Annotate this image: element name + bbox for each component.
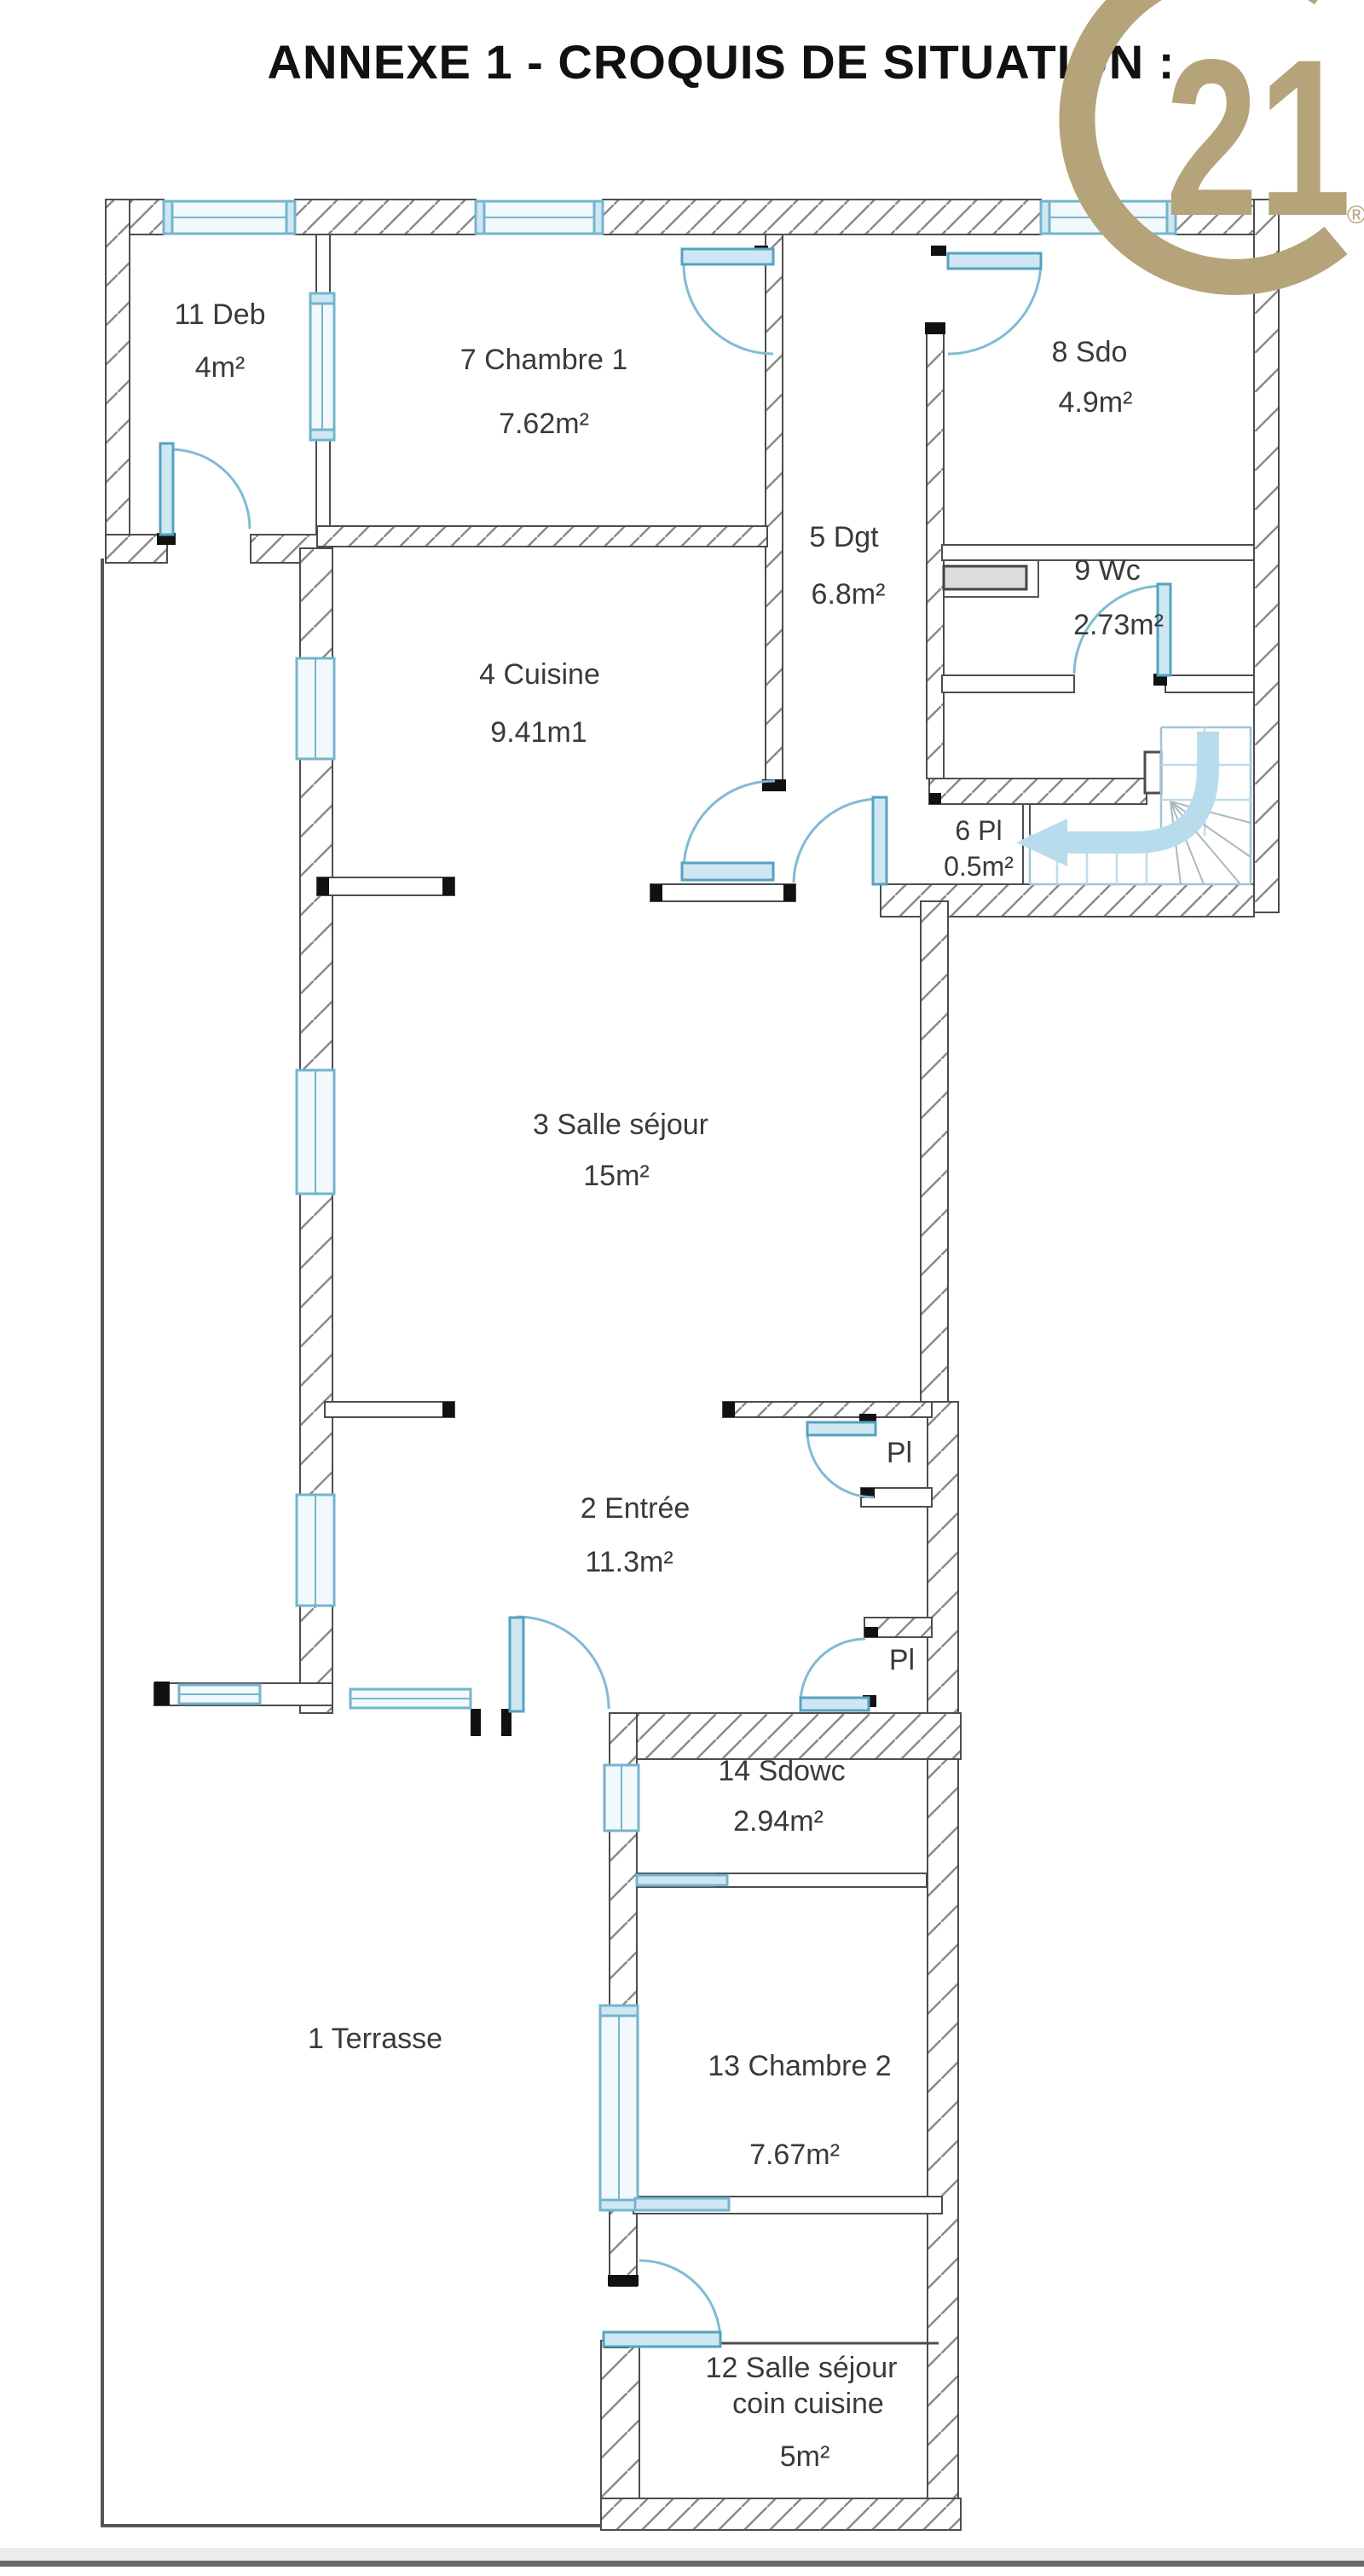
door-top-a-leaf	[682, 249, 773, 264]
door-room12-sill	[604, 2332, 720, 2347]
logo-number: 21	[1165, 13, 1351, 263]
label-chambre2-area: 7.67m²	[749, 2139, 840, 2171]
window-sejour	[297, 1070, 334, 1194]
label-pl-lower: Pl	[889, 1644, 915, 1676]
label-sdo-area: 4.9m²	[1059, 386, 1133, 419]
walls-interior	[316, 234, 1254, 2343]
label-deb-area: 4m²	[195, 351, 246, 384]
door-terrasse-leaf	[510, 1618, 523, 1711]
label-pl6-area: 0.5m²	[944, 851, 1014, 882]
label-deb-name: 11 Deb	[174, 298, 265, 331]
door-pl2-leaf	[800, 1698, 869, 1711]
label-entree-name: 2 Entrée	[581, 1492, 691, 1525]
window-top-1	[164, 201, 295, 234]
label-salle12-name: 12 Salle séjour	[706, 2352, 898, 2384]
window-deb-panel	[310, 293, 334, 440]
door-top-b-leaf	[948, 253, 1041, 269]
stairs	[1016, 727, 1251, 884]
logo-registered-mark: ®	[1347, 201, 1364, 229]
label-cuisine-name: 4 Cuisine	[479, 658, 600, 691]
label-entree-area: 11.3m²	[585, 1546, 673, 1578]
door-deb-arc	[170, 449, 250, 529]
door-top-b-arc	[948, 261, 1041, 354]
door-deb-leaf	[160, 443, 173, 535]
window-divider-chambre2	[635, 2198, 729, 2210]
stair-fan-treads	[1170, 802, 1251, 884]
label-chambre2-name: 13 Chambre 2	[708, 2050, 891, 2082]
label-dgt-area: 6.8m²	[812, 578, 886, 611]
door-top-a-arc	[684, 264, 773, 354]
door-dgt-arc	[794, 799, 879, 883]
label-sdowc-name: 14 Sdowc	[718, 1755, 845, 1787]
label-wc-area: 2.73m²	[1073, 609, 1164, 641]
door-cuisine-arc	[684, 781, 775, 867]
window-chambre2	[600, 2006, 638, 2210]
page-title: ANNEXE 1 - CROQUIS DE SITUATION :	[268, 35, 1176, 89]
door-room12-arc	[639, 2261, 720, 2342]
window-wing	[179, 1685, 260, 1704]
label-cuisine-area: 9.41m1	[490, 716, 587, 749]
door-pl2-arc	[800, 1639, 865, 1702]
label-pl6-name: 6 Pl	[955, 815, 1002, 846]
terrace-outline	[102, 559, 605, 2526]
sink	[944, 566, 1026, 589]
label-salle12-name2: coin cuisine	[732, 2388, 884, 2420]
window-cuisine	[297, 658, 334, 759]
floorplan-drawing: ANNEXE 1 - CROQUIS DE SITUATION :	[0, 0, 1364, 2576]
label-sejour-name: 3 Salle séjour	[533, 1109, 708, 1141]
label-pl-upper: Pl	[887, 1437, 912, 1469]
window-sdowc	[604, 1765, 639, 1831]
window-top-2	[476, 201, 603, 234]
label-sejour-area: 15m²	[583, 1160, 649, 1192]
label-wc-name: 9 Wc	[1074, 554, 1140, 587]
door-pl1-leaf	[807, 1422, 876, 1435]
floorplan-page: ANNEXE 1 - CROQUIS DE SITUATION :	[0, 0, 1364, 2576]
label-chambre1-name: 7 Chambre 1	[460, 344, 628, 376]
page-bottom-rule	[0, 2548, 1364, 2567]
door-terrasse-arc	[517, 1617, 609, 1709]
label-salle12-area: 5m²	[780, 2440, 830, 2473]
window-entree	[297, 1495, 334, 1606]
window-entree-bottom	[350, 1689, 471, 1708]
label-terrasse: 1 Terrasse	[308, 2023, 442, 2055]
label-sdo-name: 8 Sdo	[1052, 336, 1128, 368]
window-divider-sdowc	[637, 1875, 727, 1885]
door-dgt-leaf	[873, 797, 887, 884]
label-sdowc-area: 2.94m²	[733, 1805, 824, 1838]
door-cuisine-leaf	[682, 863, 773, 880]
label-chambre1-area: 7.62m²	[499, 408, 589, 440]
label-dgt-name: 5 Dgt	[809, 521, 879, 553]
